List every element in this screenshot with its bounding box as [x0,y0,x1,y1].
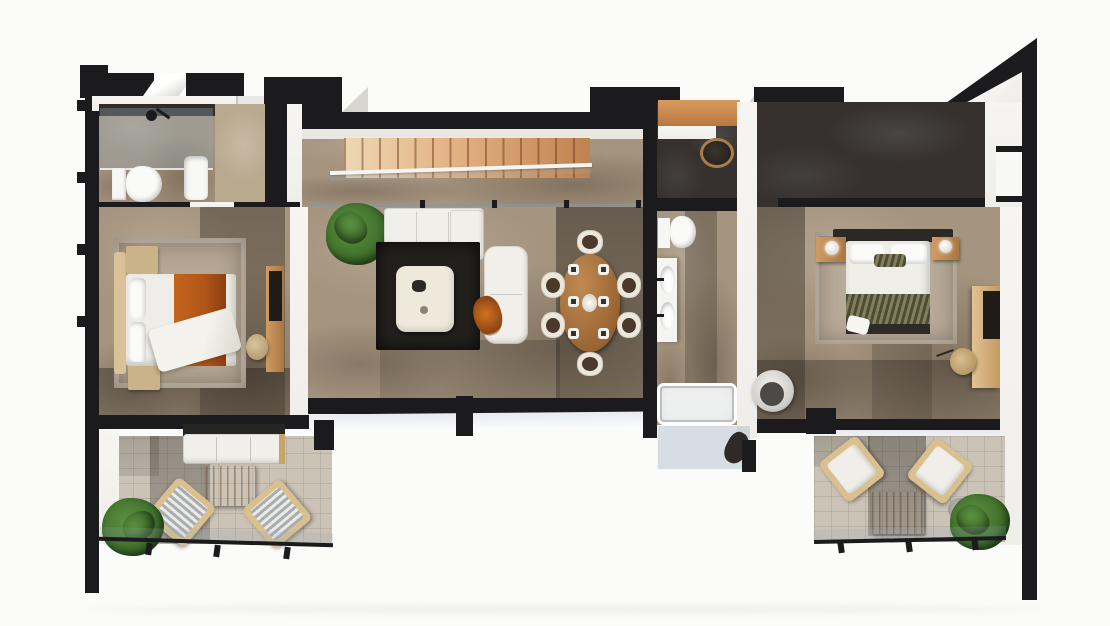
toilet-main-bowl [670,216,696,248]
nook-desk-front [658,126,716,139]
chair-seat [546,318,560,333]
terrace-left-table [206,466,256,506]
headboard-left [114,252,126,374]
bed-left [126,274,236,366]
faucet [657,314,664,317]
terrace-left-corner-post [314,420,334,450]
chair-seat [622,278,636,293]
roof-shade-triangle [342,87,368,112]
plant-leaves [328,206,373,251]
glass-wall-mullion [420,200,425,208]
shower-head-icon [146,110,157,121]
chair-seat [582,235,598,249]
sofa-wood-arm [279,434,285,464]
coffee-table [396,266,454,332]
pillow [130,278,146,318]
lounge-blanket [760,382,784,406]
sofa-cushion-line [216,437,217,461]
stairhall-left-wall [287,104,302,207]
toilet-main-tank [658,218,670,248]
railing-post [283,547,291,560]
sofa-cushion-line [490,294,522,295]
sofa-cushion-line [250,437,251,461]
terrace-shadow [119,436,159,476]
table-decor [420,306,428,314]
dining-chair [577,352,603,376]
place-setting [598,264,609,275]
chair-seat [546,278,560,293]
dining-chair [617,312,641,338]
faucet [657,278,664,281]
place-setting [598,328,609,339]
place-setting [598,296,609,307]
table-decor [412,280,426,292]
railing-post [213,545,221,558]
place-setting [568,264,579,275]
niche-frame [996,146,1022,152]
outdoor-sofa [183,434,285,464]
hallway-floor [757,102,985,207]
top-wall-main-band [286,112,680,129]
pillow [130,322,146,362]
toilet-left-bowl [126,166,162,202]
window-post [456,396,473,436]
place-setting [568,296,579,307]
accent-pillow [874,254,906,267]
ground-shadow [90,604,1040,614]
shower-post [742,440,756,472]
right-wall-window-niche [996,150,1022,198]
dining-chair [541,272,565,298]
window-nub [77,100,86,111]
dining-chair [541,312,565,338]
sofa-cushion-line [448,212,449,242]
toilet-left-tank [112,168,126,200]
chair-master [950,348,976,375]
left-pillar-wall [85,68,99,593]
window-nub [77,244,86,255]
dining-chair [577,230,603,254]
living-window-sill [300,411,660,432]
glass-wall-mullion [492,200,497,208]
chair-seat [582,357,598,371]
bed-master [846,241,930,334]
table-lamp [939,240,952,253]
bathtub [657,383,737,425]
nook-chair [700,138,734,168]
desk-left-tv [269,271,282,321]
niche-frame [996,196,1022,202]
nightstand [126,246,158,274]
terrace-right-plant [950,494,1010,550]
chair-left-bedroom [246,334,268,360]
dining-chair [617,272,641,298]
railing-post [145,543,153,556]
place-setting [568,328,579,339]
dining-table [560,254,620,352]
lounge-chair [752,370,794,412]
sofa-cushion-line [416,212,417,242]
wardrobe [265,96,287,207]
wall-stub [806,408,836,434]
right-pillar-wall [1022,66,1037,600]
washbasin-left [184,156,208,200]
window-nub [77,316,86,327]
floorplan-render [0,0,1110,626]
bathroom-main-left-wall [643,98,657,438]
centerpiece [582,294,597,312]
nook-desk-counter [658,100,740,126]
chair-seat [622,318,636,333]
window-nub [77,172,86,183]
table-lamp [825,241,839,255]
